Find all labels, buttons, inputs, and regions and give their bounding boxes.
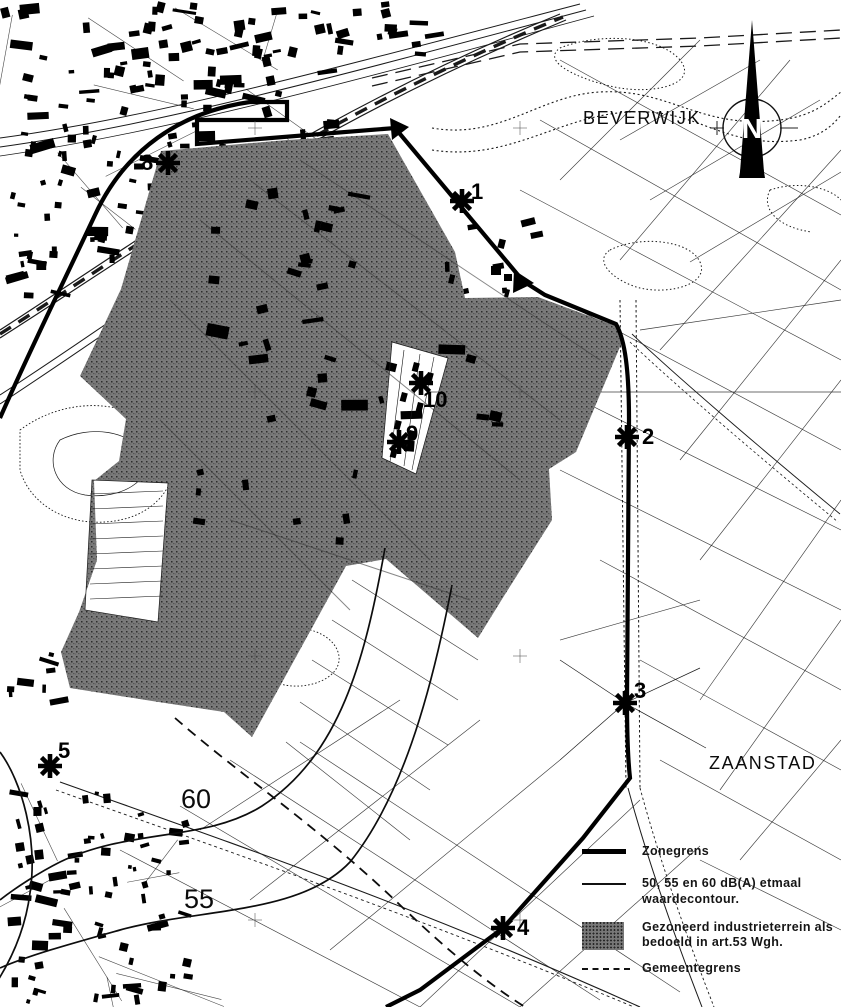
- noise-zoning-map: BEVERWIJK ZAANSTAD 1234589106055 N Zoneg…: [0, 0, 841, 1007]
- legend-item-contour: 50, 55 en 60 dB(A) etmaal waardecontour.: [582, 876, 841, 907]
- zonegrens-line-symbol: [582, 849, 626, 854]
- city-label-zaanstad: ZAANSTAD: [709, 753, 816, 774]
- industrial-area-symbol: [582, 922, 624, 950]
- legend-item-gemeentegrens: Gemeentegrens: [582, 961, 841, 976]
- legend-label-industrieterrein: Gezoneerd industrieterrein als bedoeld i…: [642, 920, 833, 951]
- contour-value-label-60: 60: [181, 784, 211, 815]
- measurement-point-star-icon: [613, 423, 641, 451]
- measurement-point-number: 5: [58, 740, 70, 762]
- legend-label-contour: 50, 55 en 60 dB(A) etmaal waardecontour.: [642, 876, 802, 907]
- contour-value-label-55: 55: [184, 884, 214, 915]
- measurement-point-number: 3: [634, 680, 646, 702]
- gemeentegrens-line-symbol: [582, 968, 630, 970]
- legend-label-contour-line2: waardecontour.: [642, 892, 739, 906]
- contour-line-symbol: [582, 883, 626, 885]
- industrial-area: [61, 134, 622, 737]
- legend-label-contour-line1: 50, 55 en 60 dB(A) etmaal: [642, 876, 802, 890]
- north-arrow: N: [700, 8, 810, 190]
- measurement-point-star-icon: [489, 914, 517, 942]
- measurement-point-star-icon: [154, 149, 182, 177]
- measurement-point-number: 9: [406, 423, 418, 445]
- legend-label-industrieterrein-line2: bedoeld in art.53 Wgh.: [642, 935, 783, 949]
- legend-item-zonegrens: Zonegrens: [582, 844, 841, 859]
- city-label-beverwijk: BEVERWIJK: [583, 108, 701, 129]
- legend: Zonegrens 50, 55 en 60 dB(A) etmaal waar…: [582, 844, 841, 977]
- measurement-point-number: 1: [471, 181, 483, 203]
- measurement-point-number: 8: [141, 152, 153, 174]
- legend-label-industrieterrein-line1: Gezoneerd industrieterrein als: [642, 920, 833, 934]
- legend-label-zonegrens: Zonegrens: [642, 844, 709, 859]
- legend-label-gemeentegrens: Gemeentegrens: [642, 961, 741, 976]
- measurement-point-number: 10: [423, 389, 447, 411]
- north-arrow-base: [739, 154, 765, 178]
- measurement-point-number: 2: [642, 426, 654, 448]
- legend-item-industrieterrein: Gezoneerd industrieterrein als bedoeld i…: [582, 920, 841, 951]
- north-arrow-needle: [740, 20, 764, 172]
- north-letter: N: [742, 113, 762, 144]
- measurement-point-number: 4: [517, 917, 529, 939]
